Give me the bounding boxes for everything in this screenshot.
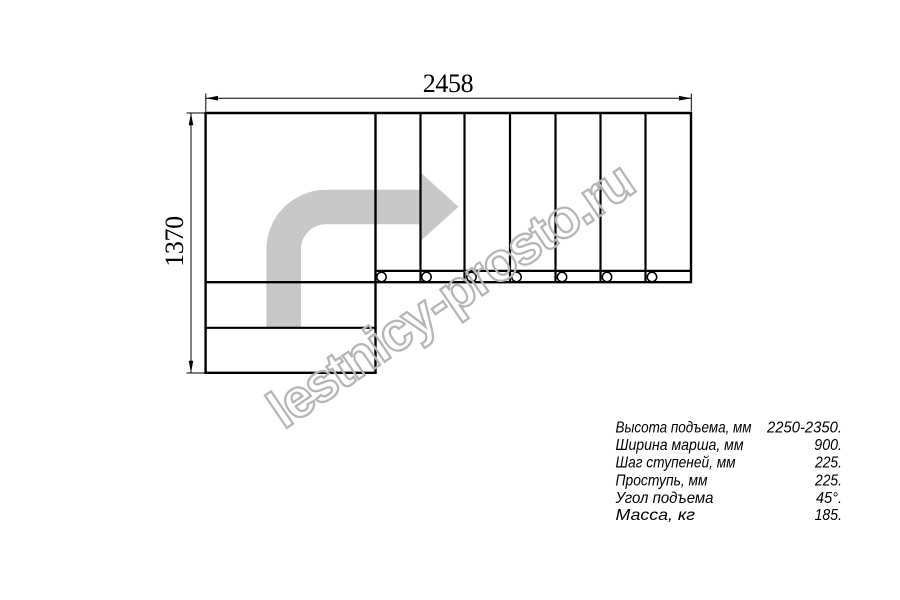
svg-text:1370: 1370 bbox=[160, 216, 189, 267]
svg-text:Ширина марша, мм: Ширина марша, мм bbox=[616, 437, 744, 454]
svg-text:Шаг ступеней, мм: Шаг ступеней, мм bbox=[616, 455, 736, 472]
svg-text:Высота подъема, мм: Высота подъема, мм bbox=[616, 420, 752, 437]
svg-text:2458: 2458 bbox=[423, 69, 474, 98]
svg-text:Масса, кг: Масса, кг bbox=[616, 507, 696, 524]
svg-text:45°.: 45°. bbox=[816, 490, 842, 507]
svg-text:2250-2350.: 2250-2350. bbox=[766, 420, 842, 437]
svg-text:Угол подъема: Угол подъема bbox=[615, 490, 714, 507]
svg-text:225.: 225. bbox=[814, 455, 842, 472]
svg-text:900.: 900. bbox=[814, 437, 842, 454]
svg-text:Проступь, мм: Проступь, мм bbox=[616, 472, 708, 489]
svg-text:185.: 185. bbox=[815, 507, 842, 524]
svg-text:225.: 225. bbox=[814, 472, 842, 489]
